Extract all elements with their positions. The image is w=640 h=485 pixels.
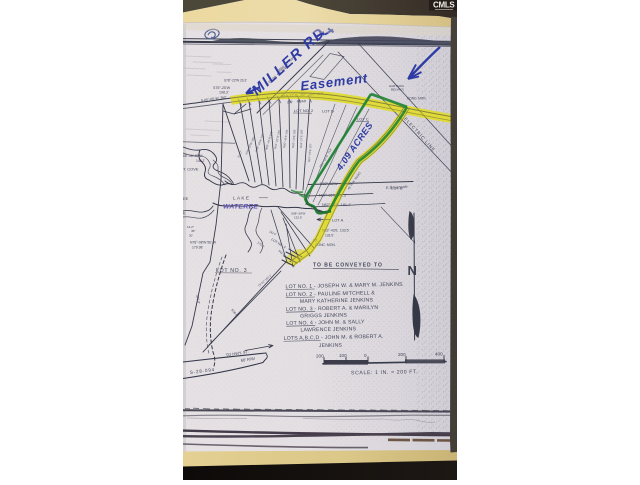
svg-text:TO BE CONVEYED TO: TO BE CONVEYED TO — [313, 263, 383, 269]
svg-text:BELVA(?): BELVA(?) — [391, 88, 404, 92]
svg-text:65°-06'-46"W: 65°-06'-46"W — [183, 154, 203, 158]
svg-text:COND. MON.: COND. MON. — [407, 97, 427, 101]
svg-text:45°: 45° — [191, 229, 196, 233]
svg-text:133.5': 133.5' — [325, 233, 334, 237]
svg-text:EE: EE — [183, 196, 189, 201]
svg-text:S78°-22'W 26.3': S78°-22'W 26.3' — [224, 79, 247, 83]
svg-text:E: E — [183, 211, 186, 216]
svg-text:149.2': 149.2' — [196, 159, 205, 163]
svg-text:S75°-25'W: S75°-25'W — [213, 86, 231, 90]
svg-text:198.3': 198.3' — [219, 90, 229, 94]
svg-text:200: 200 — [316, 354, 324, 359]
svg-text:T. COVE: T. COVE — [183, 167, 199, 172]
svg-text:GRIGGS JENKINS: GRIGGS JENKINS — [300, 313, 347, 320]
svg-text:LAWRENCE JENKINS: LAWRENCE JENKINS — [300, 326, 356, 333]
svg-text:200: 200 — [398, 352, 406, 357]
svg-text:179.98': 179.98' — [192, 246, 203, 250]
svg-text:N78°-08'W 56'-W: N78°-08'W 56'-W — [190, 241, 217, 245]
svg-text:LOT D: LOT D — [322, 109, 334, 114]
svg-text:0: 0 — [364, 353, 367, 358]
svg-text:WATEREE: WATEREE — [223, 204, 258, 211]
svg-text:LOT A: LOT A — [332, 218, 344, 223]
svg-text:N: N — [408, 263, 417, 278]
svg-text:132.6': 132.6' — [294, 216, 303, 220]
svg-text:JENKINS: JENKINS — [319, 343, 343, 349]
svg-text:400: 400 — [435, 351, 443, 356]
svg-text:LAKE: LAKE — [233, 196, 250, 201]
svg-text:SCALE: 1 IN. = 200 FT.: SCALE: 1 IN. = 200 FT. — [351, 369, 418, 376]
svg-text:N04°-27'E 185': N04°-27'E 185' — [299, 129, 304, 148]
svg-text:CMLS: CMLS — [433, 1, 455, 10]
svg-text:100: 100 — [339, 353, 347, 358]
svg-text:30': 30' — [189, 233, 193, 237]
svg-text:LOT NO. 2: LOT NO. 2 — [294, 108, 314, 113]
